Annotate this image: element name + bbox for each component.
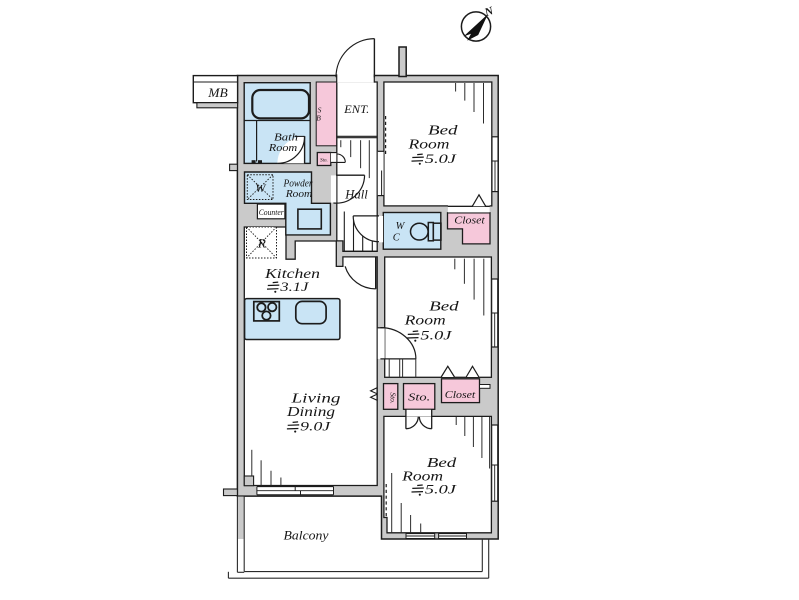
svg-text:N: N [482, 5, 496, 20]
svg-text:Sto.: Sto. [320, 159, 328, 164]
svg-text:5.0J: 5.0J [425, 482, 458, 497]
svg-text:MB: MB [207, 86, 228, 100]
svg-text:Room: Room [268, 142, 298, 154]
svg-text:Room: Room [285, 189, 313, 200]
svg-text:W: W [396, 221, 406, 232]
svg-text:C: C [393, 233, 401, 244]
svg-text:Closet: Closet [454, 215, 486, 227]
svg-text:3.1J: 3.1J [279, 279, 310, 294]
svg-text:Bed: Bed [429, 299, 460, 314]
svg-text:5.0J: 5.0J [425, 151, 458, 166]
svg-text:Room: Room [403, 314, 445, 329]
svg-text:Sto.: Sto. [389, 392, 398, 404]
svg-text:W: W [255, 181, 266, 195]
svg-text:Bed: Bed [428, 124, 459, 139]
svg-text:9.0J: 9.0J [300, 419, 332, 434]
svg-text:Dining: Dining [286, 404, 336, 419]
svg-text:Sto.: Sto. [408, 392, 430, 404]
svg-text:Powder: Powder [283, 178, 314, 189]
svg-text:Balcony: Balcony [284, 529, 329, 543]
svg-text:R: R [257, 236, 266, 251]
svg-text:5.0J: 5.0J [420, 328, 453, 343]
svg-text:Hall: Hall [344, 187, 368, 202]
svg-text:ENT.: ENT. [343, 102, 369, 116]
svg-text:Counter: Counter [259, 207, 284, 217]
svg-text:B: B [316, 114, 321, 123]
svg-text:Closet: Closet [445, 389, 477, 401]
